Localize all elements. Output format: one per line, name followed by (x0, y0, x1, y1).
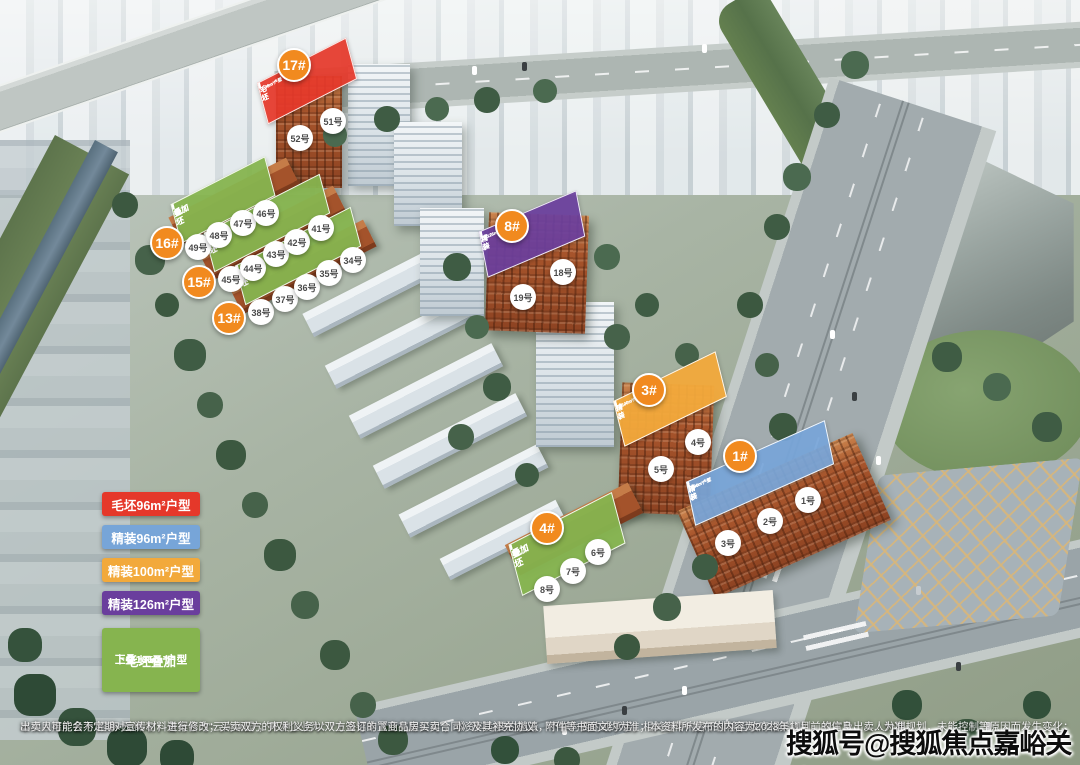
legend-sublabel-lower: 下叠141m²户型 (115, 654, 187, 667)
unit-circle-52: 52号 (287, 125, 313, 151)
unit-circle-38: 38号 (248, 299, 274, 325)
building-badge-8: 8# (495, 209, 529, 243)
sohu-watermark: 搜狐号@搜狐焦点嘉峪关站 (786, 722, 1080, 765)
unit-circle-46: 46号 (253, 200, 279, 226)
unit-circle-2: 2号 (757, 508, 783, 534)
unit-circle-19: 19号 (510, 284, 536, 310)
aerial-masterplan-image: 毛坯96m²户型 毛坯96m²户型 毛坯96m²户型 毛坯96m²户型 毛坯叠加… (0, 0, 1080, 765)
building-badge-17: 17# (277, 48, 311, 82)
legend-label: 毛坯96m²户型 (111, 495, 190, 514)
intersection-plaza (854, 458, 1080, 634)
unit-circle-18: 18号 (550, 259, 576, 285)
cars-layer (0, 0, 5, 9)
unit-circle-41: 41号 (308, 215, 334, 241)
building-badge-1: 1# (723, 439, 757, 473)
unit-circle-7: 7号 (560, 558, 586, 584)
unit-circle-1: 1号 (795, 487, 821, 513)
flag-line2: 96m²户型 (693, 478, 711, 491)
building-badge-15: 15# (182, 265, 216, 299)
unit-circle-34: 34号 (340, 247, 366, 273)
unit-circle-48: 48号 (206, 222, 232, 248)
legend-item-fine126: 精装126m²户型 (102, 591, 200, 615)
disclaimer-line2: 出卖人可能会不定期对宣传材料进行修改；买卖双方的权利义务以双方签订的《商品房买卖… (20, 718, 905, 736)
white-tower (420, 208, 484, 316)
legend-label: 精装100m²户型 (108, 561, 194, 580)
legend-label: 精装96m²户型 (111, 528, 190, 547)
legend-item-rough96: 毛坯96m²户型 (102, 492, 200, 516)
unit-circle-42: 42号 (284, 229, 310, 255)
flag-line2: 96m²户型 (265, 77, 283, 90)
unit-circle-6: 6号 (585, 539, 611, 565)
legend-item-stacked: 毛坯叠加 上叠135m²户型 下叠141m²户型 (102, 628, 200, 692)
legend-label: 精装126m²户型 (108, 594, 194, 613)
unit-circle-4: 4号 (685, 429, 711, 455)
legend-item-fine96: 精装96m²户型 (102, 525, 200, 549)
legend-item-fine100: 精装100m²户型 (102, 558, 200, 582)
building-badge-16: 16# (150, 226, 184, 260)
unit-circle-3: 3号 (715, 530, 741, 556)
unit-circle-8: 8号 (534, 576, 560, 602)
unit-circle-44: 44号 (240, 255, 266, 281)
unit-circle-35: 35号 (316, 260, 342, 286)
building-badge-4: 4# (530, 511, 564, 545)
unit-circle-5: 5号 (648, 456, 674, 482)
building-badge-13: 13# (212, 301, 246, 335)
building-badge-3: 3# (632, 373, 666, 407)
unit-circle-51: 51号 (320, 108, 346, 134)
